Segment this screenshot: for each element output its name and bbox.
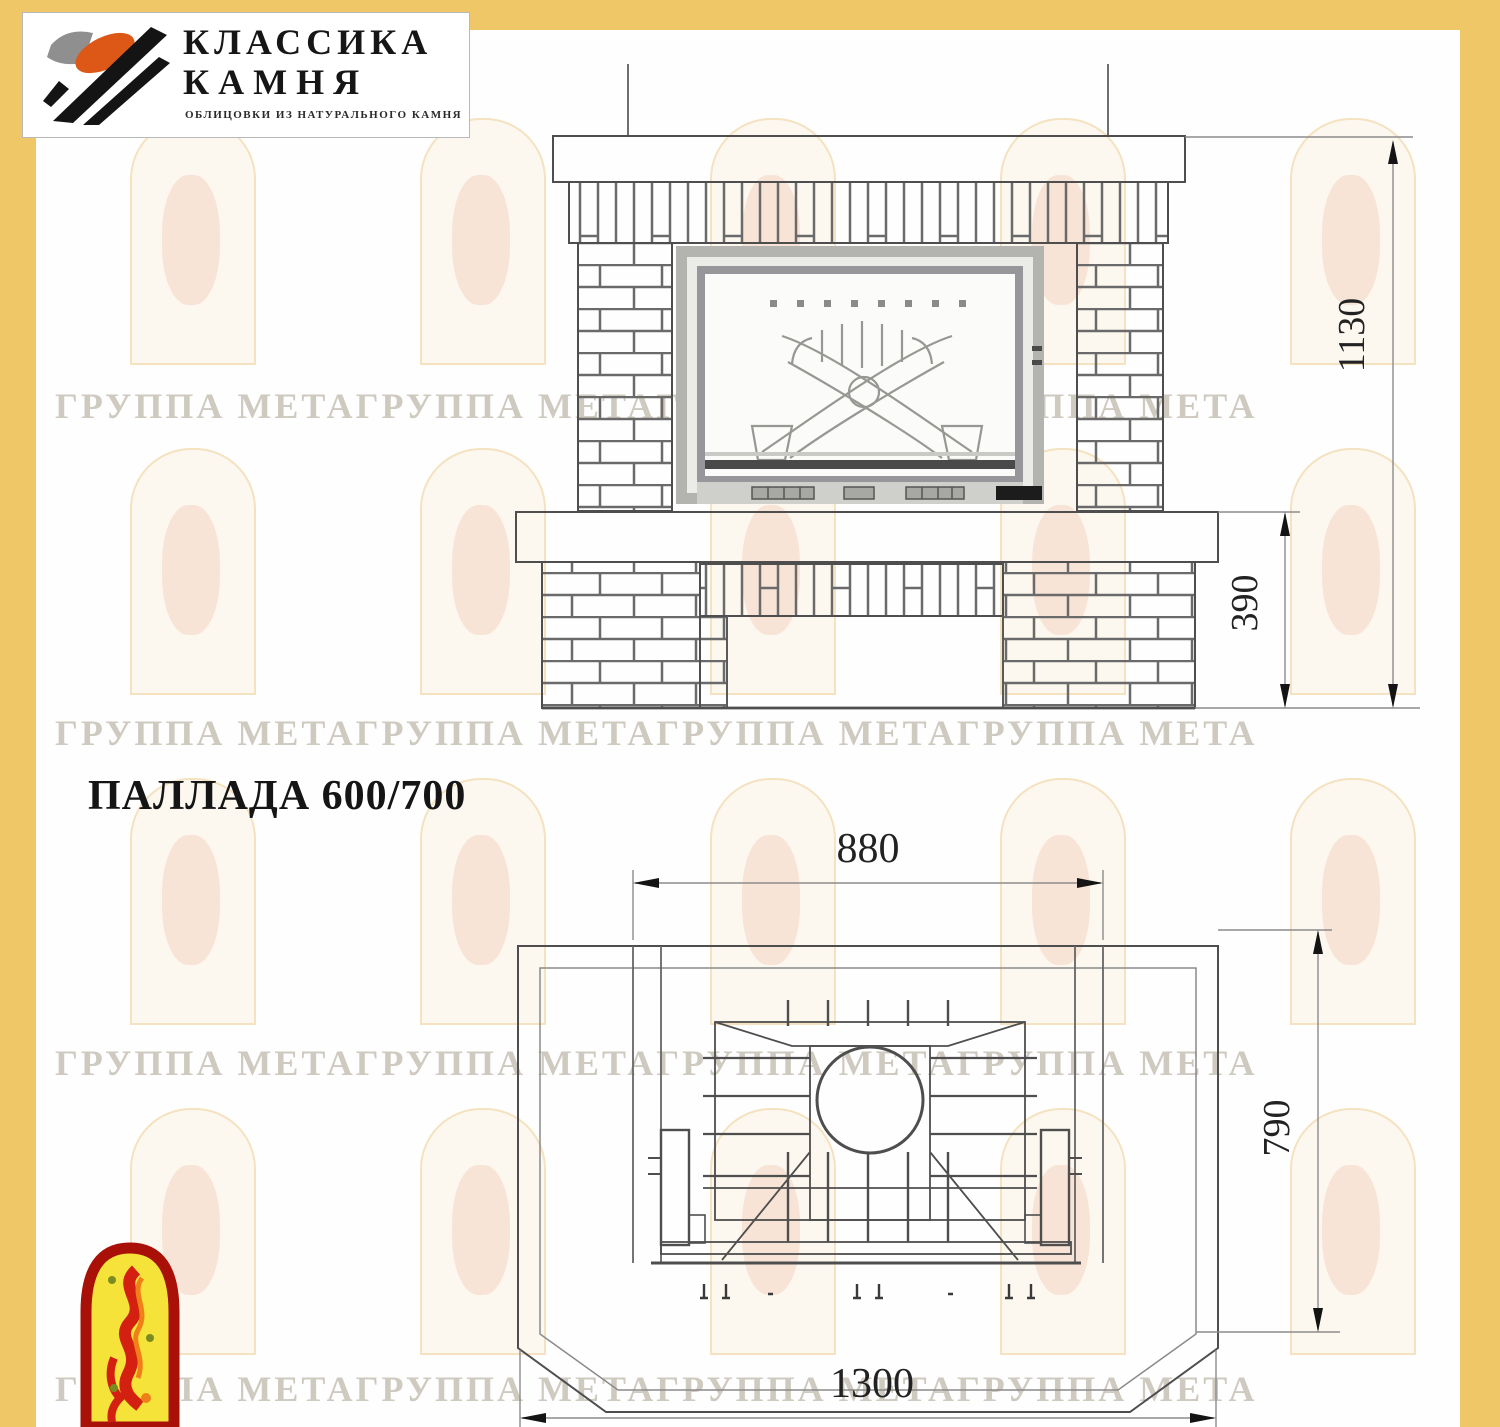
front-dimension-arrows (1280, 140, 1398, 708)
front-dimension-lines (1185, 137, 1420, 708)
model-title: ПАЛЛАДА 600/700 (88, 772, 466, 820)
dim-plan-total-width: 1300 (830, 1360, 914, 1408)
crown-shelf (553, 136, 1185, 182)
base-soldier-band (700, 564, 1003, 616)
base-left-block (542, 562, 700, 708)
dim-plan-firebox-width: 880 (837, 825, 900, 873)
dim-front-hearth-height: 390 (1223, 575, 1267, 632)
logo-name-line1: КЛАССИКА (183, 21, 432, 63)
logo-name-line2: КАМНЯ (183, 61, 368, 103)
dim-front-total-height: 1130 (1330, 298, 1374, 373)
chimney-lines (628, 64, 1108, 136)
insert-plan (703, 1000, 1037, 1260)
base-right-block (1003, 562, 1195, 708)
company-logo: КЛАССИКА КАМНЯ ОБЛИЦОВКИ ИЗ НАТУРАЛЬНОГО… (22, 12, 470, 138)
fireplace-drawing (0, 0, 1500, 1427)
frieze-band (569, 182, 1168, 243)
front-elevation (516, 64, 1218, 708)
feet-marks (700, 1284, 1035, 1298)
page: ГРУППА МЕТАГРУППА МЕТАГРУППА МЕТАГРУППА … (0, 0, 1500, 1427)
right-pier (1077, 243, 1163, 511)
company-logo-icon (39, 23, 179, 127)
logo-tagline: ОБЛИЦОВКИ ИЗ НАТУРАЛЬНОГО КАМНЯ (185, 109, 462, 121)
hearth-shelf (516, 512, 1218, 562)
door-handle (1032, 360, 1042, 365)
door-handle (1032, 346, 1042, 351)
plan-view (518, 946, 1218, 1412)
base-left-sliver (700, 616, 727, 708)
dim-plan-depth: 790 (1255, 1100, 1299, 1157)
firebox-insert (676, 246, 1044, 504)
fire-emblem (80, 1238, 180, 1427)
hearth-enclosure (648, 1130, 1082, 1263)
plan-dimension-arrows (520, 878, 1323, 1423)
wood-niche (727, 616, 1003, 708)
left-pier (578, 243, 672, 511)
